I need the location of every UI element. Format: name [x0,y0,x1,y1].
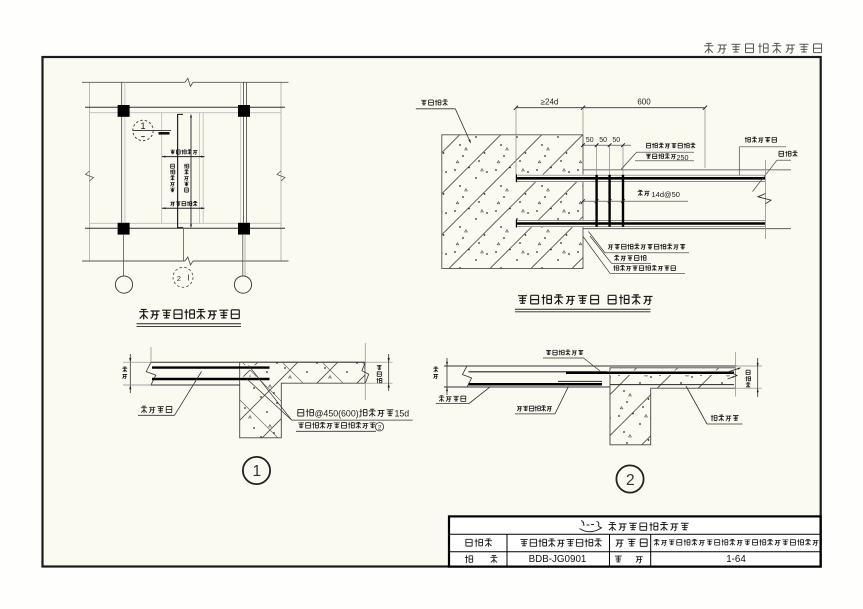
svg-text:1: 1 [252,463,261,480]
svg-text:1: 1 [140,121,145,132]
svg-text:50: 50 [612,137,620,144]
svg-text:600: 600 [637,97,651,106]
svg-text:BDB-JG0901: BDB-JG0901 [529,554,587,565]
svg-text:1-64: 1-64 [726,554,746,565]
svg-text:2: 2 [626,472,635,489]
svg-text:14d@50: 14d@50 [652,190,680,199]
svg-text:@450(600),: @450(600), [315,409,362,419]
svg-text:50: 50 [599,137,607,144]
svg-text:50: 50 [586,137,594,144]
svg-text:15d: 15d [395,409,410,419]
svg-text:2: 2 [177,274,181,283]
svg-text:≥24d: ≥24d [541,97,559,106]
